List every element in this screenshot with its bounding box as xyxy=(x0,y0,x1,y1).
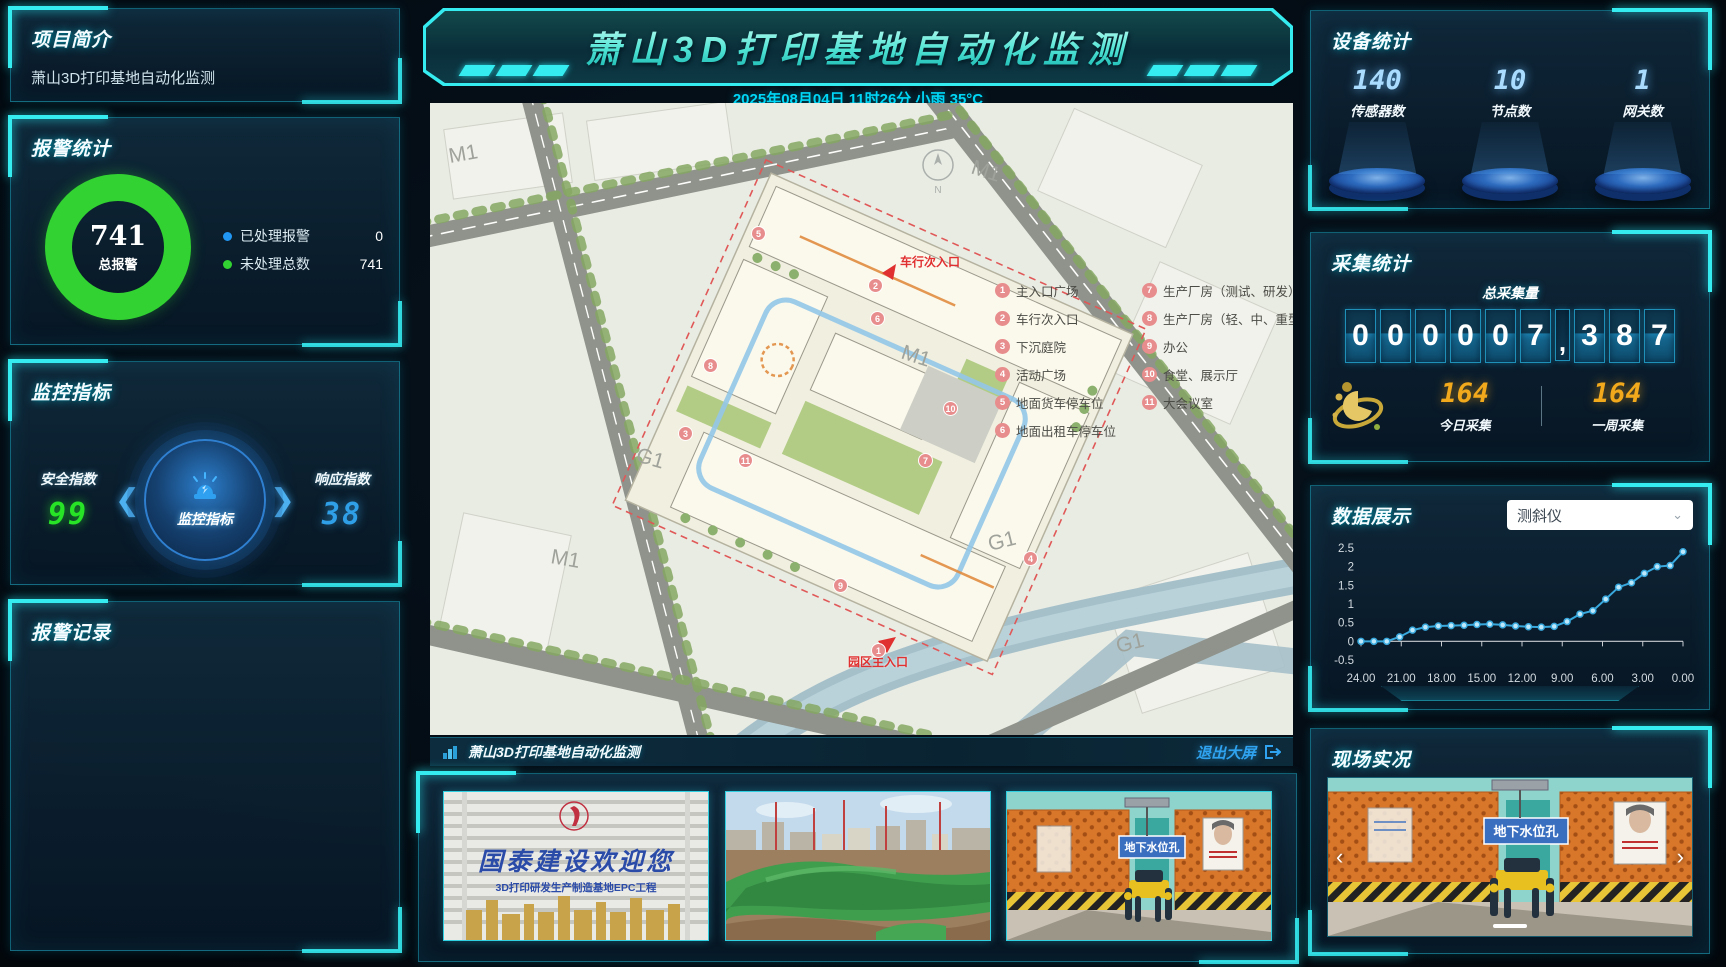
counter-digit: 0 xyxy=(1415,309,1446,363)
chevron-right-icon[interactable]: ❯ xyxy=(270,483,295,518)
legend-label: 已处理报警 xyxy=(240,226,310,246)
svg-text:1: 1 xyxy=(1348,599,1354,611)
live-site-photo[interactable]: 地下水位孔 ‹ › xyxy=(1327,777,1693,937)
panel-title: 现场实况 xyxy=(1331,745,1411,772)
panel-title: 项目简介 xyxy=(31,25,111,52)
map-marker: 7 xyxy=(918,453,933,468)
total-counter: 0 0 0 0 0 7 , 3 8 7 xyxy=(1311,309,1709,363)
panel-device-stats: 设备统计 140 传感器数 10 节点数 1 网关数 xyxy=(1310,10,1710,209)
panel-alarm-stats: 报警统计 741 总报警 已处理报警 0 未处理总数 741 xyxy=(10,117,400,345)
response-index: 响应指数 38 xyxy=(299,469,385,532)
dashboard: 项目简介 萧山3D打印基地自动化监测 报警统计 741 总报警 已处理报警 0 … xyxy=(0,0,1726,967)
panel-data-display: 数据展示 测斜仪 ⌄ -0.500.511.522.524.0021.0018.… xyxy=(1310,485,1710,710)
panel-monitor-index: 监控指标 安全指数 99 ❮ 监控指标 ❯ 响应指数 xyxy=(10,361,400,585)
legend-value: 0 xyxy=(375,228,383,244)
carousel-prev-arrow[interactable]: ‹ xyxy=(1336,844,1343,870)
map-marker: 9 xyxy=(833,578,848,593)
svg-text:24.00: 24.00 xyxy=(1347,673,1376,685)
svg-text:15.00: 15.00 xyxy=(1467,673,1496,685)
svg-text:18.00: 18.00 xyxy=(1427,673,1456,685)
svg-text:12.00: 12.00 xyxy=(1508,673,1537,685)
svg-text:-0.5: -0.5 xyxy=(1334,655,1354,667)
bar-chart-icon xyxy=(442,744,458,760)
legend-dot-blue xyxy=(223,232,232,241)
panel-title: 监控指标 xyxy=(31,378,111,405)
svg-text:3.00: 3.00 xyxy=(1632,673,1654,685)
legend-label: 未处理总数 xyxy=(240,254,310,274)
exit-icon xyxy=(1263,744,1281,760)
exit-fullscreen-button[interactable]: 退出大屏 xyxy=(1196,742,1281,763)
chevron-left-icon[interactable]: ❮ xyxy=(115,483,140,518)
carousel-photo-welcome-wall[interactable]: 国泰建设欢迎您 3D打印研发生产制造基地EPC工程 xyxy=(443,791,709,941)
map-marker: 3 xyxy=(678,426,693,441)
sign-text: 地下水位孔 xyxy=(1125,840,1180,854)
stat-label: 网关数 xyxy=(1588,100,1698,120)
panel-title: 采集统计 xyxy=(1331,249,1411,276)
map-marker: 8 xyxy=(703,358,718,373)
svg-text:1.5: 1.5 xyxy=(1338,580,1354,592)
svg-text:0: 0 xyxy=(1348,636,1354,648)
select-value: 测斜仪 xyxy=(1517,505,1562,526)
stat-value: 10 xyxy=(1455,65,1565,96)
map-entry-label-top: 车行次入口 xyxy=(900,253,960,270)
safety-index: 安全指数 99 xyxy=(25,469,111,532)
svg-text:2: 2 xyxy=(1348,562,1354,574)
monitor-badge-label: 监控指标 xyxy=(177,509,233,529)
panel-title: 报警统计 xyxy=(31,134,111,161)
light-beam xyxy=(1604,122,1682,174)
inclinometer-line-chart: -0.500.511.522.524.0021.0018.0015.0012.0… xyxy=(1323,538,1695,686)
counter-digit: 3 xyxy=(1574,309,1605,363)
legend-item-unprocessed: 未处理总数 741 xyxy=(223,254,383,274)
map-marker: 2 xyxy=(868,278,883,293)
counter-digit: 0 xyxy=(1345,309,1376,363)
header-banner: 萧山3D打印基地自动化监测 xyxy=(423,8,1293,86)
panel-title: 报警记录 xyxy=(31,618,111,645)
siren-icon xyxy=(188,472,222,504)
device-stat-nodes: 10 节点数 xyxy=(1455,65,1565,194)
safety-index-value: 99 xyxy=(25,497,111,532)
counter-digit: 7 xyxy=(1520,309,1551,363)
map-footer-bar: 萧山3D打印基地自动化监测 退出大屏 xyxy=(430,737,1293,766)
svg-text:0.5: 0.5 xyxy=(1338,618,1354,630)
collect-subtitle: 总采集量 xyxy=(1311,283,1709,303)
carousel-next-arrow[interactable]: › xyxy=(1677,844,1684,870)
alarm-legend: 已处理报警 0 未处理总数 741 xyxy=(223,218,383,282)
welcome-text: 国泰建设欢迎您 xyxy=(478,847,675,876)
legend-item-processed: 已处理报警 0 xyxy=(223,226,383,246)
map-marker: 6 xyxy=(870,311,885,326)
svg-text:21.00: 21.00 xyxy=(1387,673,1416,685)
safety-index-label: 安全指数 xyxy=(25,469,111,489)
sensor-select-dropdown[interactable]: 测斜仪 ⌄ xyxy=(1507,500,1693,530)
map-marker: 1 xyxy=(871,643,886,658)
panel-bottom-decoration xyxy=(1381,686,1639,701)
alarm-donut-chart: 741 总报警 xyxy=(45,174,191,320)
panel-project-intro: 项目简介 萧山3D打印基地自动化监测 xyxy=(10,8,400,102)
map-marker: 5 xyxy=(751,226,766,241)
panel-live-site: 现场实况 xyxy=(1310,728,1710,954)
device-stat-sensors: 140 传感器数 xyxy=(1322,65,1432,194)
panel-title: 数据展示 xyxy=(1331,502,1411,529)
site-plan-map: N M1 M1 M1 M1 G1 G1 G1 车行次入口 园区主入口 1 2 3… xyxy=(430,103,1293,735)
svg-text:9.00: 9.00 xyxy=(1551,673,1573,685)
footer-title: 萧山3D打印基地自动化监测 xyxy=(468,742,640,762)
panel-collect-stats: 采集统计 总采集量 0 0 0 0 0 7 , 3 8 7 164 今日采集 xyxy=(1310,232,1710,462)
legend-dot-green xyxy=(223,260,232,269)
week-value: 164 xyxy=(1542,378,1694,409)
map-marker: 11 xyxy=(738,453,753,468)
panel-alarm-records: 报警记录 xyxy=(10,601,400,951)
collect-week: 164 一周采集 xyxy=(1542,378,1694,434)
counter-digit: 8 xyxy=(1609,309,1640,363)
project-name-text: 3D打印研发生产制造基地EPC工程 xyxy=(495,881,657,894)
svg-text:0.00: 0.00 xyxy=(1672,673,1694,685)
stat-value: 140 xyxy=(1322,65,1432,96)
counter-digit: 0 xyxy=(1380,309,1411,363)
light-beam xyxy=(1471,122,1549,174)
counter-digit: 0 xyxy=(1485,309,1516,363)
today-label: 今日采集 xyxy=(1389,415,1541,434)
svg-text:6.00: 6.00 xyxy=(1591,673,1613,685)
today-value: 164 xyxy=(1389,378,1541,409)
photo-carousel-panel: 国泰建设欢迎您 3D打印研发生产制造基地EPC工程 xyxy=(418,773,1297,962)
alarm-total-value: 741 xyxy=(90,221,146,252)
light-beam xyxy=(1338,122,1416,174)
banner-decoration-left xyxy=(462,65,566,76)
banner-decoration-right xyxy=(1150,65,1254,76)
svg-text:N: N xyxy=(934,185,941,196)
device-stat-gateways: 1 网关数 xyxy=(1588,65,1698,194)
response-index-label: 响应指数 xyxy=(299,469,385,489)
carousel-photo-fence-robot[interactable]: 地下水位孔 xyxy=(1006,791,1272,941)
page-title: 萧山3D打印基地自动化监测 xyxy=(585,21,1131,73)
svg-text:2.5: 2.5 xyxy=(1338,543,1354,555)
response-index-value: 38 xyxy=(299,497,385,532)
sign-text: 地下水位孔 xyxy=(1493,824,1558,839)
monitor-badge: 监控指标 xyxy=(144,439,266,561)
counter-comma: , xyxy=(1555,309,1570,361)
map-marker: 10 xyxy=(943,401,958,416)
collect-today: 164 今日采集 xyxy=(1389,378,1541,434)
stat-value: 1 xyxy=(1588,65,1698,96)
map-marker: 4 xyxy=(1023,551,1038,566)
stat-label: 传感器数 xyxy=(1322,100,1432,120)
gold-collect-icon xyxy=(1327,375,1389,437)
map-legend: 1主入口广场 2车行次入口 3下沉庭院 4活动广场 5地面货车停车位 6地面出租… xyxy=(995,281,1293,440)
carousel-indicator[interactable] xyxy=(1493,924,1527,928)
panel-title: 设备统计 xyxy=(1331,27,1411,54)
carousel-photo-construction-site[interactable] xyxy=(725,791,991,941)
week-label: 一周采集 xyxy=(1542,415,1694,434)
stat-label: 节点数 xyxy=(1455,100,1565,120)
counter-digit: 0 xyxy=(1450,309,1481,363)
project-description: 萧山3D打印基地自动化监测 xyxy=(31,67,215,88)
counter-digit: 7 xyxy=(1644,309,1675,363)
legend-value: 741 xyxy=(360,256,383,272)
alarm-total-label: 总报警 xyxy=(98,254,137,273)
chevron-down-icon: ⌄ xyxy=(1672,507,1683,523)
